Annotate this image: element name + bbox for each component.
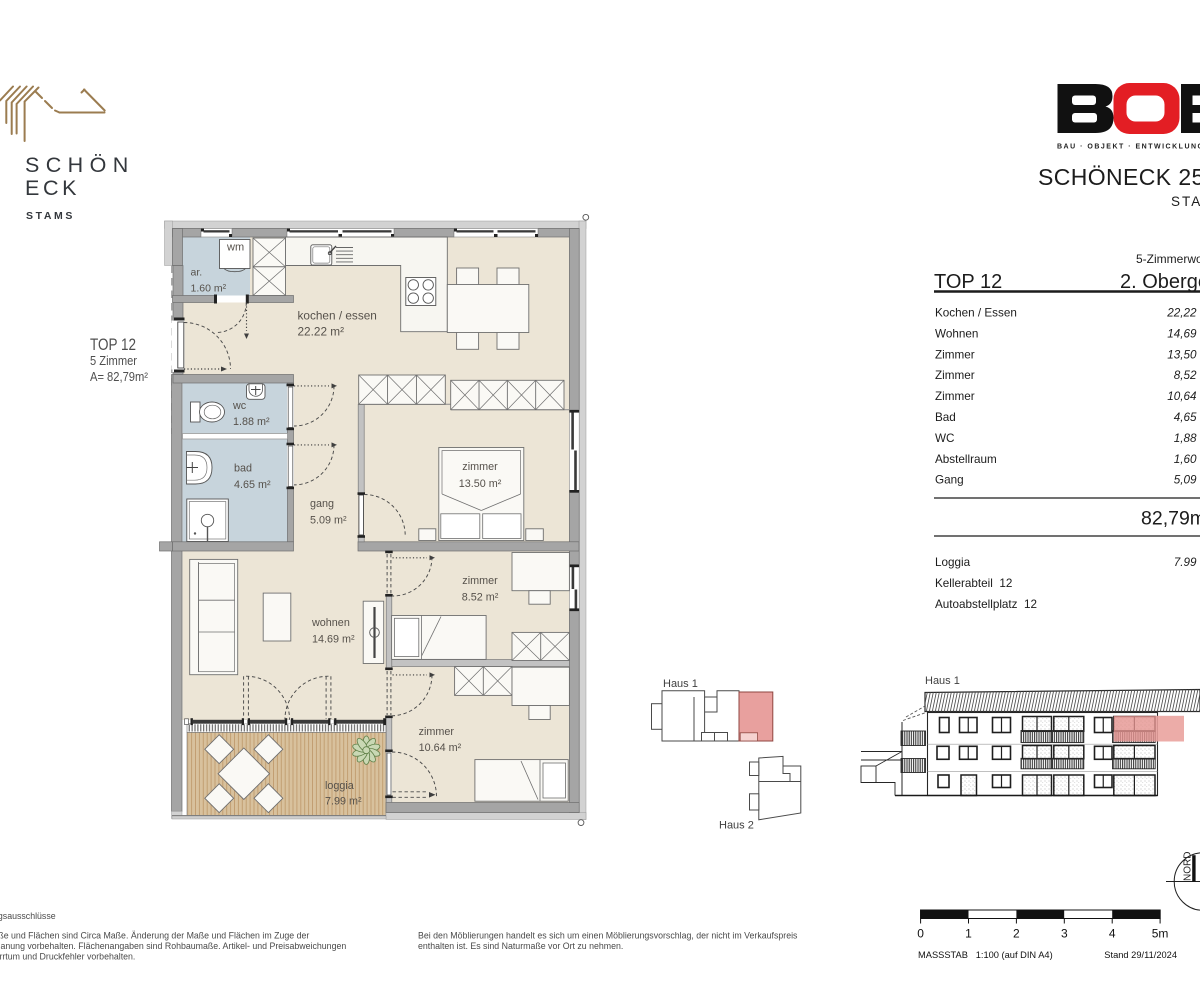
svg-text:SCHÖNECK 25: SCHÖNECK 25	[1038, 164, 1200, 190]
svg-text:bad: bad	[234, 463, 252, 475]
svg-text:MASSSTAB 1:100 (auf DIN A4): MASSSTAB 1:100 (auf DIN A4)	[918, 950, 1053, 960]
svg-text:Haus 2: Haus 2	[719, 820, 754, 832]
svg-text:8,52: 8,52	[1174, 369, 1197, 382]
svg-text:Kellerabteil 12: Kellerabteil 12	[935, 577, 1012, 590]
svg-text:7.99: 7.99	[1174, 556, 1197, 569]
svg-text:1,88: 1,88	[1174, 432, 1197, 445]
svg-text:enthalten ist. Es sind Naturma: enthalten ist. Es sind Naturmaße vor Ort…	[418, 941, 623, 951]
svg-text:22.22 m²: 22.22 m²	[298, 325, 345, 339]
svg-text:gang: gang	[310, 498, 334, 510]
svg-text:2. Obergeschoss: 2. Obergeschoss	[1120, 271, 1200, 293]
svg-text:22,22: 22,22	[1166, 307, 1197, 320]
svg-text:Zimmer: Zimmer	[935, 369, 975, 382]
svg-text:Haus 1: Haus 1	[663, 678, 698, 690]
svg-text:4,65: 4,65	[1174, 411, 1197, 424]
svg-text:1.60 m²: 1.60 m²	[191, 283, 227, 295]
svg-text:SCHÖN: SCHÖN	[25, 153, 135, 177]
svg-text:Gang: Gang	[935, 474, 964, 487]
svg-text:Kochen / Essen: Kochen / Essen	[935, 307, 1017, 320]
svg-text:5 Zimmer: 5 Zimmer	[90, 353, 138, 368]
svg-text:Wohnen: Wohnen	[935, 327, 978, 340]
svg-text:Abstellraum: Abstellraum	[935, 453, 997, 466]
svg-text:Zimmer: Zimmer	[935, 348, 975, 361]
svg-text:4.65 m²: 4.65 m²	[234, 479, 271, 491]
svg-text:TOP 12: TOP 12	[90, 335, 136, 354]
svg-text:0: 0	[917, 927, 924, 941]
svg-text:kochen / essen: kochen / essen	[298, 309, 377, 323]
svg-text:10.64 m²: 10.64 m²	[419, 742, 462, 754]
svg-text:1,60: 1,60	[1174, 453, 1197, 466]
svg-text:8.52 m²: 8.52 m²	[462, 592, 499, 604]
svg-text:Zimmer: Zimmer	[935, 390, 975, 403]
svg-text:13,50: 13,50	[1167, 348, 1197, 361]
svg-text:Bei den Möblierungen handelt e: Bei den Möblierungen handelt es sich um …	[418, 931, 798, 941]
svg-text:loggia: loggia	[325, 780, 354, 792]
svg-text:Autoabstellplatz 12: Autoabstellplatz 12	[935, 598, 1037, 611]
svg-text:wohnen: wohnen	[311, 617, 350, 629]
svg-text:82,79m²: 82,79m²	[1141, 508, 1200, 530]
svg-text:5,09: 5,09	[1174, 474, 1197, 487]
svg-text:zimmer: zimmer	[419, 726, 455, 738]
svg-text:STAMS: STAMS	[1171, 194, 1200, 209]
svg-text:WC: WC	[935, 432, 954, 445]
svg-text:Haus 1: Haus 1	[925, 675, 960, 687]
svg-text:STAMS: STAMS	[26, 210, 75, 222]
svg-text:BAU · OBJEKT · ENTWICKLUNG: BAU · OBJEKT · ENTWICKLUNG	[1057, 144, 1200, 151]
svg-text:A= 82,79m²: A= 82,79m²	[90, 369, 149, 384]
svg-text:zimmer: zimmer	[462, 461, 498, 473]
svg-text:wc: wc	[232, 400, 247, 412]
svg-text:13.50 m²: 13.50 m²	[459, 478, 502, 490]
svg-text:10,64: 10,64	[1167, 390, 1197, 403]
svg-text:14,69: 14,69	[1167, 327, 1197, 340]
svg-text:5.09 m²: 5.09 m²	[310, 515, 347, 527]
svg-text:Stand 29/11/2024: Stand 29/11/2024	[1104, 950, 1177, 960]
svg-text:Haftungsausschlüsse: Haftungsausschlüsse	[0, 911, 56, 921]
svg-text:ECK: ECK	[25, 176, 80, 200]
svg-text:Alle Maße und Flächen sind Cir: Alle Maße und Flächen sind Circa Maße. Ä…	[0, 931, 309, 941]
svg-text:3: 3	[1061, 927, 1068, 941]
svg-text:14.69 m²: 14.69 m²	[312, 634, 355, 646]
svg-text:Irrtum und Druckfehler vorbeha: Irrtum und Druckfehler vorbehalten.	[0, 952, 135, 962]
svg-text:NORD: NORD	[1183, 852, 1194, 881]
svg-text:1: 1	[965, 927, 972, 941]
svg-text:ar.: ar.	[191, 267, 203, 279]
svg-text:7.99 m²: 7.99 m²	[325, 796, 362, 808]
svg-text:zimmer: zimmer	[462, 575, 498, 587]
svg-text:Loggia: Loggia	[935, 556, 971, 569]
svg-text:1.88 m²: 1.88 m²	[233, 416, 270, 428]
svg-text:5m: 5m	[1152, 927, 1169, 941]
svg-text:5-Zimmerwohnung: 5-Zimmerwohnung	[1136, 252, 1200, 266]
svg-text:Bauplanung vorbehalten. Fläche: Bauplanung vorbehalten. Flächenangaben s…	[0, 941, 346, 951]
svg-text:4: 4	[1109, 927, 1116, 941]
svg-text:wm: wm	[226, 242, 244, 254]
svg-text:TOP 12: TOP 12	[934, 271, 1002, 293]
svg-text:2: 2	[1013, 927, 1020, 941]
svg-text:Bad: Bad	[935, 411, 956, 424]
